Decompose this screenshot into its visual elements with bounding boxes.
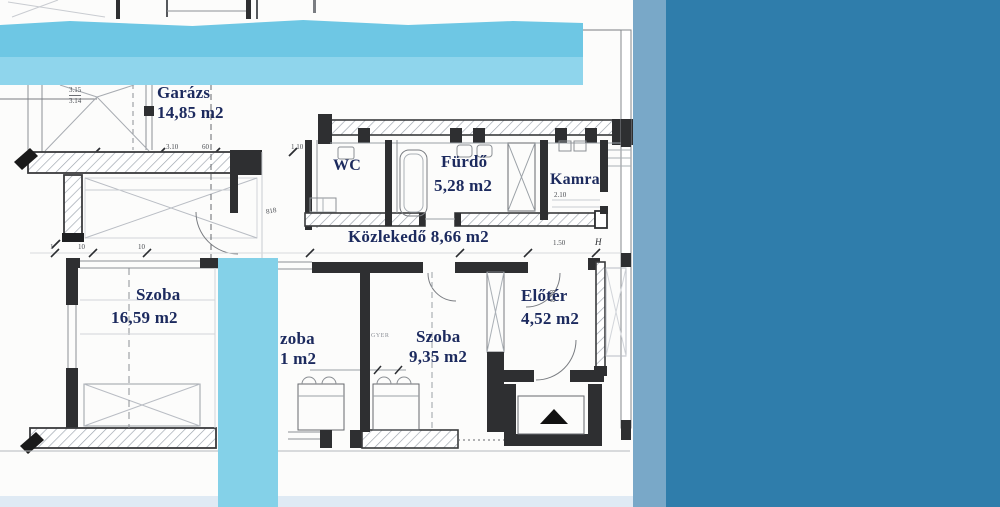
middle-bedroom xyxy=(288,272,504,448)
mid-wall-band xyxy=(14,84,262,258)
room-area-foyer: 4,52 m2 xyxy=(521,310,579,327)
annotation-gyer: GYER xyxy=(371,333,389,339)
right-side-band xyxy=(666,0,1000,507)
room-label-bathroom: Fürdő xyxy=(441,153,487,170)
room-label-wc: WC xyxy=(333,158,361,174)
dim-foyer-opening: 1.50 xyxy=(553,240,565,247)
floorplan-screenshot: Garázs 14,85 m2 WC Fürdő 5,28 m2 Kamra K… xyxy=(0,0,1000,507)
room-label-left-bedroom: Szoba xyxy=(136,286,180,303)
bottom-light-strip xyxy=(0,496,633,507)
highlight-top-bar xyxy=(0,19,583,57)
highlight-vertical-bar xyxy=(218,258,278,507)
dim-wall-tick-a: 1 xyxy=(50,244,54,251)
room-label-pantry: Kamra xyxy=(550,172,600,188)
left-bedroom xyxy=(20,268,216,454)
dim-foyer-door: 8,78 xyxy=(550,290,557,302)
room-label-garage: Garázs xyxy=(157,84,210,101)
hallway-area: 8,66 m2 xyxy=(431,227,489,246)
hallway-name: Közlekedő xyxy=(348,227,426,246)
dim-garage-width-b: 3.14 xyxy=(69,98,81,105)
room-area-middle-bedroom-partial: 1 m2 xyxy=(280,350,316,367)
room-label-hallway: Közlekedő 8,66 m2 xyxy=(348,228,489,245)
right-side-strip xyxy=(633,0,666,507)
room-label-middle-bedroom-partial: zoba xyxy=(280,330,315,347)
top-strip-walls xyxy=(8,0,316,19)
room-area-garage: 14,85 m2 xyxy=(157,104,224,121)
hallway-dimension-line xyxy=(30,249,620,257)
dim-garage-b: 60 xyxy=(202,144,209,151)
section-marker: H xyxy=(595,238,602,247)
service-row-bottom-wall xyxy=(305,211,607,228)
dim-garage-width-a: 3.15 xyxy=(69,87,81,96)
room-label-foyer: Előtér xyxy=(521,287,568,304)
dim-garage-a: 3.10 xyxy=(166,144,178,151)
dim-wall-tick-b: 10 xyxy=(78,244,85,251)
highlight-top-bar-light xyxy=(0,57,583,85)
dim-pantry-depth: 2.10 xyxy=(554,192,566,199)
room-area-right-bedroom: 9,35 m2 xyxy=(409,348,467,365)
room-area-bathroom: 5,28 m2 xyxy=(434,177,492,194)
dim-wall-tick-c: 10 xyxy=(138,244,145,251)
room-area-left-bedroom: 16,59 m2 xyxy=(111,309,178,326)
room-label-right-bedroom: Szoba xyxy=(416,328,460,345)
dim-garage-c: 1.10 xyxy=(291,144,303,151)
